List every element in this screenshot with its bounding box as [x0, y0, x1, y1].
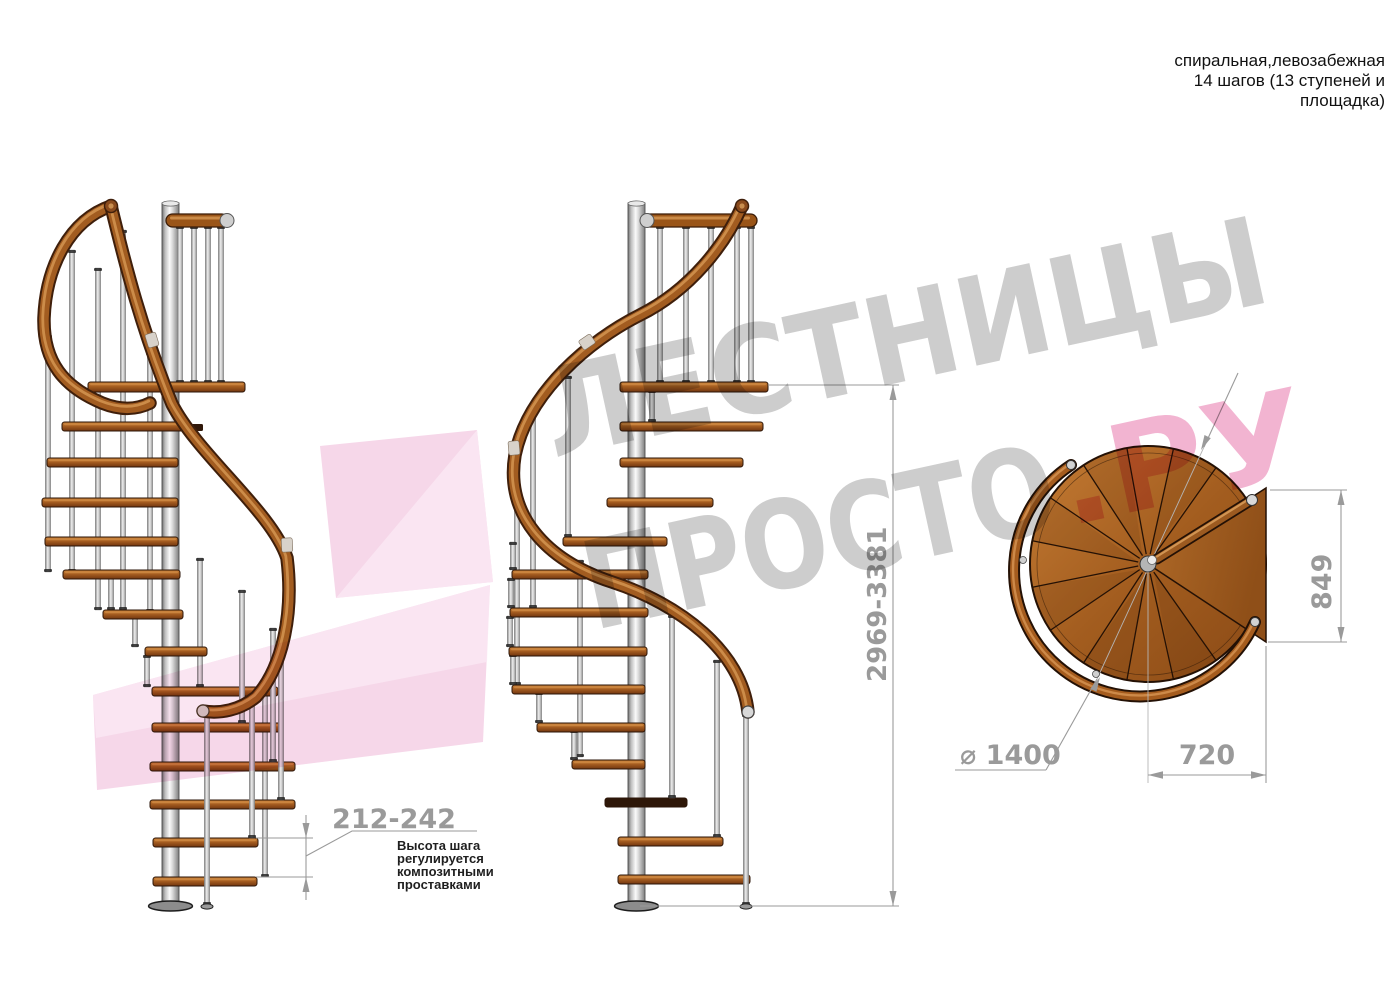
baluster-rod: [132, 616, 138, 647]
pole-top-cap: [628, 201, 645, 206]
title-line-1: спиральная,левозабежная: [1174, 51, 1385, 70]
pole-base-flange: [149, 901, 193, 911]
watermark-word-2-suffix: .РУ: [1044, 362, 1320, 554]
step-highlight: [44, 499, 176, 501]
step-highlight: [147, 648, 205, 650]
baluster-rod: [191, 226, 197, 383]
baluster-rod: [743, 714, 749, 905]
stair-step: [605, 798, 687, 807]
balusters-front: [668, 615, 750, 905]
ring-end-cap: [1251, 618, 1260, 627]
step-highlight: [539, 724, 643, 726]
handrail-top-cap-face: [108, 203, 113, 208]
ring-baluster-dot: [1093, 671, 1100, 678]
rod-collar: [509, 542, 517, 545]
rail-highlight: [170, 217, 222, 220]
rod-collar: [269, 628, 277, 631]
rod-collar: [94, 607, 102, 610]
baluster-rod: [508, 578, 514, 608]
baluster-rod: [69, 250, 75, 572]
hub-ball: [1148, 556, 1157, 565]
rail-end-ball: [220, 214, 234, 228]
step-highlight: [105, 611, 181, 613]
baluster-rod: [714, 660, 720, 837]
rod-collar: [44, 569, 52, 572]
label-plan-width: 720: [1179, 740, 1235, 771]
rod-collar: [576, 754, 584, 757]
baluster-rod: [510, 542, 516, 570]
handrail-bottom-cap: [742, 706, 754, 718]
title-line-2: 14 шагов (13 ступеней и: [1194, 71, 1385, 90]
baluster-rod: [120, 230, 126, 610]
rod-collar: [713, 834, 721, 837]
label-step-height: 212-242: [332, 804, 456, 835]
spiral-staircase-technical-drawing: 212-242 2969-3381 849 720 ⌀ 1400 Высота …: [0, 0, 1400, 1000]
handrail-top-cap-face: [739, 203, 744, 208]
step-height-note: Высота шага регулируется композитными пр…: [397, 838, 494, 892]
baluster-rod: [177, 226, 183, 383]
baluster-rod: [95, 268, 101, 610]
step-highlight: [47, 538, 176, 540]
rail-end-ball: [640, 214, 654, 228]
baluster-rod: [510, 654, 516, 685]
rod-collar: [238, 590, 246, 593]
baluster-rod: [45, 335, 51, 572]
step-highlight: [152, 801, 293, 803]
baluster-rod: [205, 226, 211, 383]
note-line-4: проставками: [397, 877, 481, 892]
rod-collar: [196, 558, 204, 561]
label-diameter: ⌀ 1400: [960, 740, 1061, 771]
rod-collar: [248, 835, 256, 838]
title-block: спиральная,левозабежная 14 шагов (13 сту…: [1174, 51, 1385, 110]
rod-collar: [131, 644, 139, 647]
step-highlight: [49, 459, 176, 461]
title-line-3: площадка): [1300, 91, 1385, 110]
baluster-rod: [571, 730, 577, 760]
left-staircase-side-view: [42, 200, 295, 912]
rod-collar: [668, 795, 676, 798]
baluster-foot: [201, 904, 213, 909]
handrail-joint: [508, 441, 520, 456]
baluster-rod: [218, 226, 224, 383]
step-highlight: [65, 571, 178, 573]
rod-collar: [713, 660, 721, 663]
top-guard-rail: [166, 214, 228, 227]
pole-top-cap: [162, 201, 179, 206]
label-platform-length: 849: [1307, 554, 1338, 610]
step-highlight: [620, 838, 721, 840]
drawing-page: 212-242 2969-3381 849 720 ⌀ 1400 Высота …: [0, 0, 1400, 1000]
rod-collar: [277, 797, 285, 800]
rod-collar: [68, 250, 76, 253]
handrail-joint: [281, 538, 293, 553]
baluster-rod: [108, 576, 114, 610]
step-highlight: [620, 876, 748, 878]
baluster-rod: [507, 616, 513, 647]
step-highlight: [514, 686, 643, 688]
step-highlight: [574, 761, 643, 763]
step-highlight: [64, 423, 181, 425]
rod-collar: [94, 268, 102, 271]
baluster-rod: [536, 692, 542, 723]
